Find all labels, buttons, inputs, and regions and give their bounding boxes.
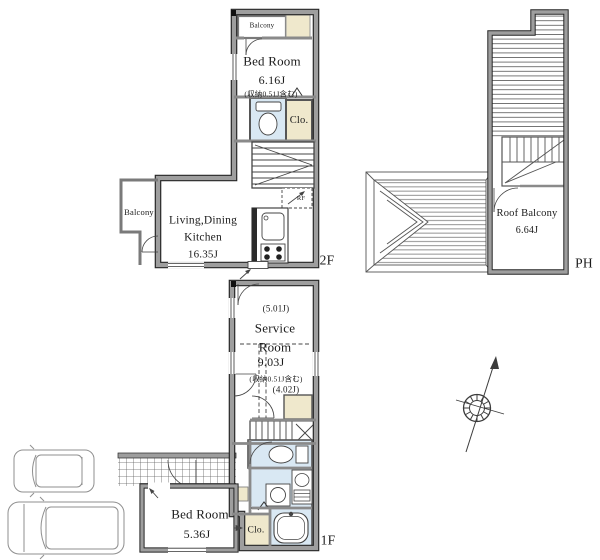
bedroom-1f-size: 5.36J (184, 528, 211, 540)
compass-icon (456, 356, 504, 452)
entrance-porch (118, 453, 236, 488)
car-icon (8, 497, 124, 559)
bedroom-2f-name: Bed Room (243, 55, 301, 68)
closet-1f-label: Clo. (248, 526, 265, 536)
washroom (250, 468, 312, 508)
corner-mark (231, 10, 236, 16)
balcony-top-label: Balcony (250, 23, 275, 30)
ldk-label-2: Kitchen (184, 232, 222, 244)
stairs-2f-icon (252, 142, 314, 188)
kitchen-counter (252, 208, 288, 263)
bedroom-1f-name: Bed Room (171, 508, 229, 521)
service-upper-size: (5.01J) (263, 305, 290, 314)
floor1-label: 1F (321, 533, 336, 547)
refrigerator-label: RF (297, 196, 305, 203)
service-lower-size: (4.02J) (273, 386, 300, 395)
bedroom-2f-note: (収納0.51J含む) (244, 90, 297, 98)
floorplan-canvas (0, 0, 600, 560)
corner-mark (231, 281, 236, 287)
service-name-2: Room (259, 341, 292, 354)
floorplan-image: Balcony Bed Room 6.16J (収納0.51J含む) Clo. … (0, 0, 600, 560)
floor2-label: 2F (320, 253, 335, 267)
roof-icon (366, 172, 492, 272)
bathroom (270, 508, 312, 546)
roof-balcony-size: 6.64J (516, 226, 538, 236)
storage-nook (286, 15, 310, 38)
roof-balcony-name: Roof Balcony (496, 209, 557, 220)
storage-closet-1f (284, 395, 312, 419)
ph-label: PH (575, 256, 593, 270)
service-name-1: Service (255, 322, 295, 335)
toilet-room-2f (250, 98, 286, 141)
ldk-size: 16.35J (188, 250, 218, 261)
ldk-label-1: Living,Dining (169, 215, 237, 227)
stairs-ph-icon (502, 137, 564, 186)
bedroom-2f-size: 6.16J (259, 74, 286, 86)
closet-2f-label: Clo. (290, 116, 309, 127)
car-icon (14, 445, 94, 497)
service-note: (収納0.51J含む) (249, 375, 302, 383)
service-size: 9.03J (258, 356, 285, 368)
balcony-left-label: Balcony (124, 208, 154, 217)
